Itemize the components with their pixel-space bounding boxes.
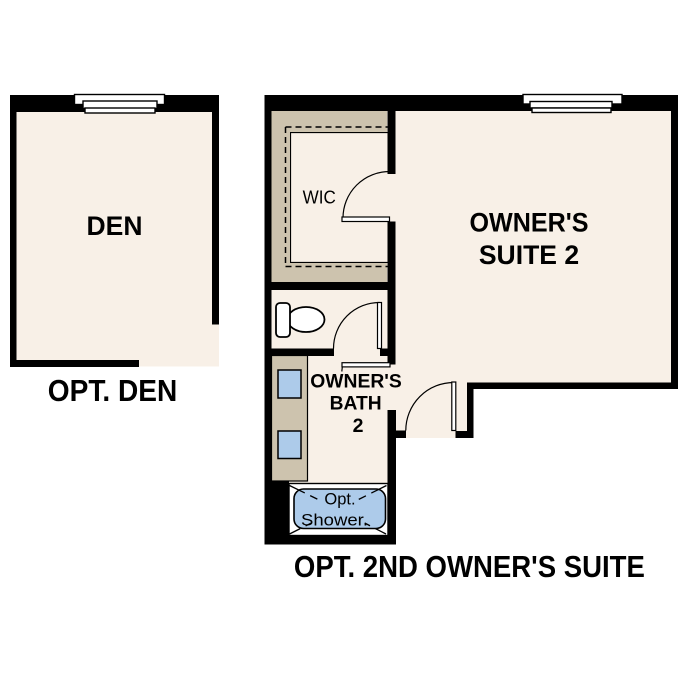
svg-text:Shower.: Shower. [301, 511, 368, 530]
svg-text:WIC: WIC [303, 187, 336, 207]
svg-text:OPT. 2ND OWNER'S SUITE: OPT. 2ND OWNER'S SUITE [294, 549, 645, 584]
svg-text:OWNER'S: OWNER'S [470, 208, 589, 238]
svg-text:2: 2 [353, 415, 364, 437]
svg-text:BATH: BATH [330, 393, 382, 415]
svg-text:OWNER'S: OWNER'S [310, 371, 402, 393]
svg-text:DEN: DEN [87, 211, 143, 241]
svg-text:SUITE 2: SUITE 2 [479, 240, 579, 270]
svg-text:Opt.: Opt. [324, 491, 355, 509]
svg-text:OPT. DEN: OPT. DEN [48, 374, 178, 408]
